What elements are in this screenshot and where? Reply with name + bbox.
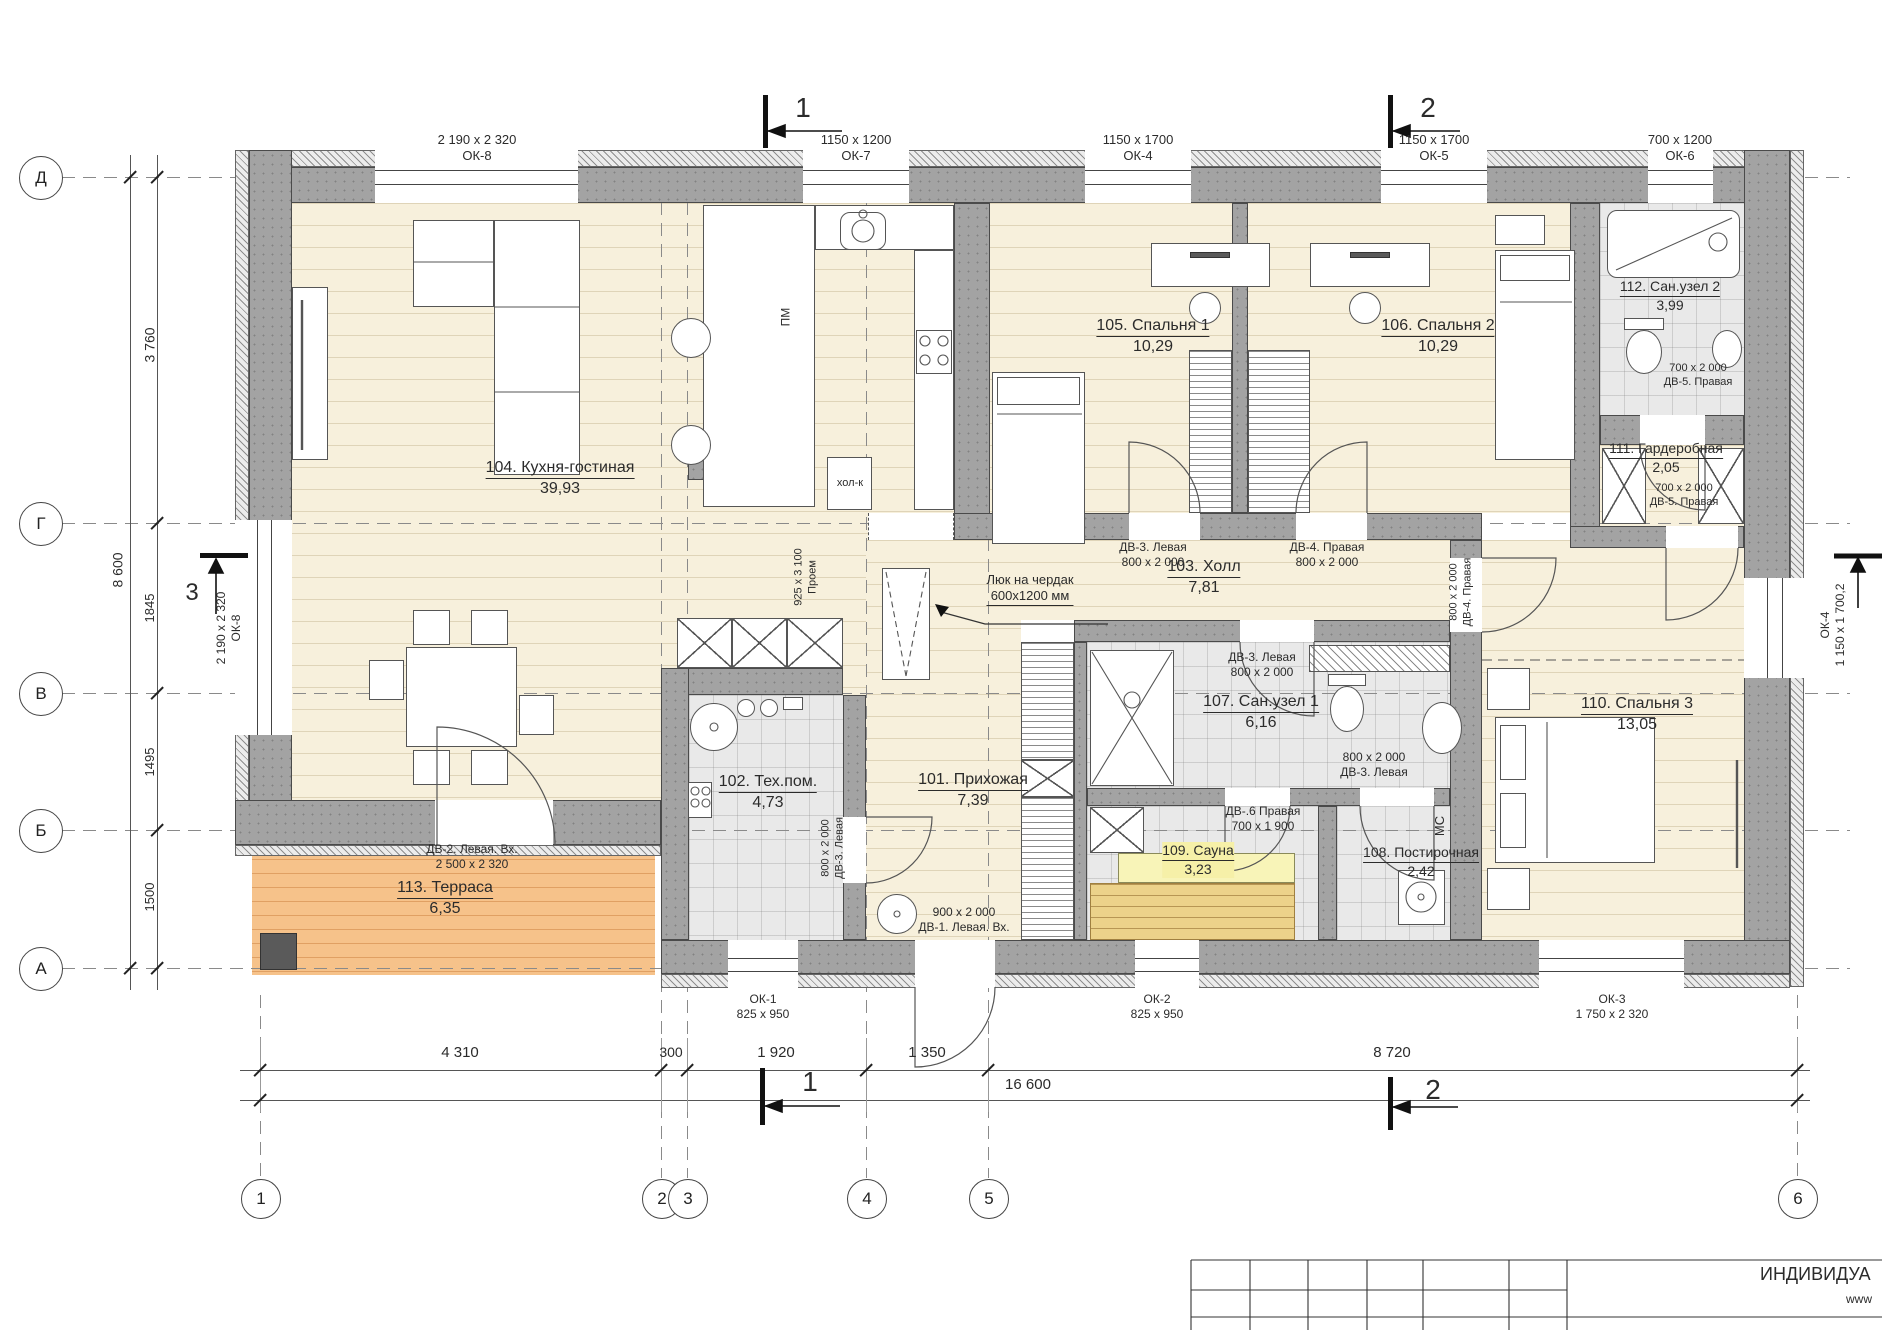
closet-living (732, 618, 787, 668)
floor-plan: ИНДИВИДУА www ДГВБА123456 2 190 x 2 320О… (0, 0, 1882, 1330)
section-2-bottom-mark (1388, 1077, 1393, 1130)
room-label-111: 111. Гардеробная2,05 (1609, 440, 1723, 476)
dim-line-bottom-2 (240, 1100, 1810, 1101)
window-label-ok6-top: 700 x 1200ОК-6 (1648, 132, 1712, 165)
window-label-ok8-top: 2 190 x 2 320ОК-8 (438, 132, 517, 165)
opening-label-proem: 925 x 3 100Проем (792, 548, 820, 606)
window-label-ok8-left: 2 190 x 2 320ОК-8 (214, 592, 244, 665)
sink-san1 (1422, 702, 1462, 754)
desk-bedroom1 (1151, 243, 1270, 287)
nightstand (1487, 868, 1530, 910)
dishwasher-label: ПМ (779, 308, 794, 327)
window-ok1 (728, 940, 798, 988)
pillow (1500, 793, 1526, 848)
dim-1845: 1845 (142, 594, 158, 623)
closet-hallway (1021, 760, 1074, 797)
pillow (1500, 725, 1526, 780)
wall-hatch-left (235, 150, 249, 856)
nightstand (1487, 668, 1530, 710)
monitor (1190, 252, 1230, 258)
door-gap-wardrobe (1666, 526, 1738, 548)
toilet-tank (1624, 318, 1664, 330)
attic-hatch (882, 568, 930, 680)
dining-table (406, 647, 517, 747)
niche-hatch-san1 (1309, 645, 1450, 672)
room-label-109: 109. Сауна3,23 (1162, 842, 1234, 878)
door-label-dv6-sauna: ДВ-.6 Правая700 x 1 900 (1226, 804, 1301, 834)
wall-closet-west (1074, 642, 1087, 940)
wall-hatch-right (1790, 150, 1804, 987)
door-label-dv3-bedroom1: ДВ-3. Левая800 x 2 000 (1119, 540, 1186, 570)
door-label-dv1: 900 x 2 000ДВ-1. Левая. Вх. (918, 905, 1009, 935)
tech-fixture (737, 699, 755, 717)
door-gap-laundry (1360, 788, 1434, 806)
door-gap-terrace-dv2 (435, 800, 553, 845)
door-label-dv5-san2: 700 x 2 000ДВ-5. Правая (1664, 362, 1733, 390)
section-3-left-mark (200, 553, 248, 558)
door-gap-bedroom2 (1296, 513, 1367, 540)
wall-sauna-laundry (1318, 806, 1337, 940)
closet-hallway (1021, 642, 1074, 760)
section-1-top-label: 1 (795, 90, 811, 125)
room-label-108: 108. Постирочная2,42 (1363, 844, 1479, 880)
title-block-org: ИНДИВИДУА (1760, 1264, 1882, 1286)
title-block-site: www (1846, 1292, 1882, 1308)
boiler (690, 703, 738, 751)
door-label-dv3-post: 800 x 2 000ДВ-3. Левая (1340, 750, 1407, 780)
grid-bubble-col-6: 6 (1778, 1179, 1818, 1219)
tech-fixture (760, 699, 778, 717)
room-label-105: 105. Спальня 110,29 (1096, 316, 1209, 357)
window-ok4-right (1744, 578, 1804, 678)
dim-line-bottom-1 (240, 1070, 1810, 1071)
witness-line (988, 1038, 989, 1112)
witness-line (687, 1038, 688, 1112)
grid-bubble-row-В: В (19, 672, 63, 716)
door-gap-entrance-dv1 (915, 940, 995, 988)
window-label-ok4-right: ОК-41 150 x 1 700,2 (1818, 584, 1848, 667)
fridge-label: хол-к (837, 477, 863, 491)
tv-unit (292, 287, 328, 460)
dining-chair (413, 610, 450, 645)
dim-8600: 8 600 (109, 552, 127, 587)
pillow (1500, 255, 1570, 281)
door-label-dv3-tech: 800 x 2 000ДВ-3. Левая (819, 817, 847, 879)
window-label-ok2: ОК-2825 x 950 (1131, 992, 1184, 1022)
window-label-ok4-top: 1150 x 1700ОК-4 (1103, 132, 1174, 165)
wall-right (1744, 150, 1790, 987)
section-1-bottom-label: 1 (802, 1064, 818, 1099)
pillow (997, 377, 1080, 405)
grid-bubble-col-4: 4 (847, 1179, 887, 1219)
window-label-ok1: ОК-1825 x 950 (737, 992, 790, 1022)
room-label-101: 101. Прихожая7,39 (918, 770, 1028, 811)
dim-300: 300 (659, 1044, 682, 1062)
door-label-dv2: ДВ-2. Левая. Вх.2 500 x 2 320 (426, 842, 517, 872)
axis-line-v (866, 160, 867, 1178)
sofa-chaise (413, 220, 494, 307)
stove (916, 330, 952, 374)
wall-kitchen-bedroom1 (954, 203, 990, 540)
window-label-ok5-top: 1150 x 1700ОК-5 (1399, 132, 1470, 165)
wall-tech-west (661, 668, 689, 940)
kitchen-island (703, 205, 815, 507)
toilet-bowl (1626, 330, 1662, 374)
dim-1495: 1495 (142, 748, 158, 777)
dining-chair (413, 750, 450, 785)
door-label-dv4-bedroom2: ДВ-4. Правая800 x 2 000 (1290, 540, 1365, 570)
section-1-bottom-mark (760, 1068, 765, 1125)
dim-1350: 1 350 (908, 1044, 946, 1063)
shower (1090, 650, 1174, 786)
sofa-body (494, 220, 580, 475)
door-label-dv5-gard: 700 x 2 000ДВ-5. Правая (1650, 482, 1719, 510)
grid-bubble-col-3: 3 (668, 1179, 708, 1219)
room-label-104: 104. Кухня-гостиная39,93 (486, 458, 635, 499)
room-label-110: 110. Спальня 313,05 (1581, 694, 1693, 735)
room-label-113: 113. Терраса6,35 (397, 878, 493, 919)
room-label-106: 106. Спальня 210,29 (1381, 316, 1494, 357)
toilet-bowl (1330, 686, 1364, 732)
toilet-tank (1328, 674, 1366, 686)
dim-16600: 16 600 (1005, 1076, 1051, 1095)
washer-place-label: МС (1432, 816, 1448, 836)
window-label-ok3: ОК-31 750 x 2 320 (1576, 992, 1649, 1022)
section-1-top-mark (763, 95, 768, 148)
grid-bubble-row-А: А (19, 947, 63, 991)
door-label-dv4-bedroom3: 800 x 2 000ДВ-4. Правая (1447, 558, 1475, 627)
kitchen-sink (840, 212, 886, 250)
terrace-mat (260, 933, 297, 970)
desk-bedroom2 (1310, 243, 1430, 287)
opening-proem (868, 513, 954, 540)
closet-living (787, 618, 843, 668)
closet-living (677, 618, 732, 668)
window-ok2 (1135, 940, 1199, 988)
section-2-bottom-label: 2 (1425, 1072, 1441, 1107)
wardrobe-bedroom1 (1189, 350, 1232, 513)
monitor (1350, 252, 1390, 258)
window-ok3 (1539, 940, 1684, 988)
wall-left (249, 150, 292, 845)
door-gap-san1 (1240, 620, 1314, 642)
tech-cabinet (783, 697, 803, 710)
witness-line (866, 1038, 867, 1112)
closet-hallway (1021, 797, 1074, 940)
dim-line-left-inner (157, 155, 158, 990)
sauna-bench (1090, 883, 1295, 940)
grid-bubble-col-5: 5 (969, 1179, 1009, 1219)
dim-4310: 4 310 (441, 1044, 479, 1063)
wardrobe-bedroom2 (1248, 350, 1310, 513)
room-label-112: 112. Сан.узел 23,99 (1620, 278, 1720, 314)
dim-line-left-outer (130, 155, 131, 990)
nightstand (1495, 215, 1545, 245)
window-label-ok7-top: 1150 x 1200ОК-7 (821, 132, 892, 165)
room-label-102: 102. Тех.пом.4,73 (719, 772, 817, 813)
section-3-left-label: 3 (185, 578, 198, 608)
dining-chair (471, 750, 508, 785)
dim-8720: 8 720 (1373, 1044, 1411, 1063)
dim-1920: 1 920 (757, 1044, 795, 1063)
grid-bubble-row-Б: Б (19, 809, 63, 853)
desk-chair (1349, 292, 1381, 324)
dim-1500: 1500 (142, 883, 158, 912)
dining-chair (519, 695, 554, 735)
grid-bubble-row-Д: Д (19, 156, 63, 200)
door-gap-bedroom1 (1129, 513, 1200, 540)
grid-bubble-col-1: 1 (241, 1179, 281, 1219)
dining-chair (471, 610, 508, 645)
dining-chair (369, 660, 404, 700)
door-label-dv3-san1: ДВ-3. Левая800 x 2 000 (1228, 650, 1295, 680)
bed-bedroom2 (1495, 250, 1575, 460)
kitchen-counter-right (914, 250, 954, 510)
grid-bubble-row-Г: Г (19, 502, 63, 546)
pouf (877, 894, 917, 934)
dim-3760: 3 760 (141, 327, 159, 362)
section-2-top-mark (1388, 95, 1393, 148)
bathtub (1607, 210, 1740, 278)
gas-unit (688, 782, 712, 818)
room-label-107: 107. Сан.узел 16,16 (1203, 692, 1319, 733)
section-2-top-label: 2 (1420, 90, 1436, 125)
bar-stool (671, 318, 711, 358)
sauna-stove (1090, 807, 1144, 853)
attic-hatch-label: Люк на чердак600х1200 мм (986, 572, 1073, 606)
bar-stool (671, 425, 711, 465)
